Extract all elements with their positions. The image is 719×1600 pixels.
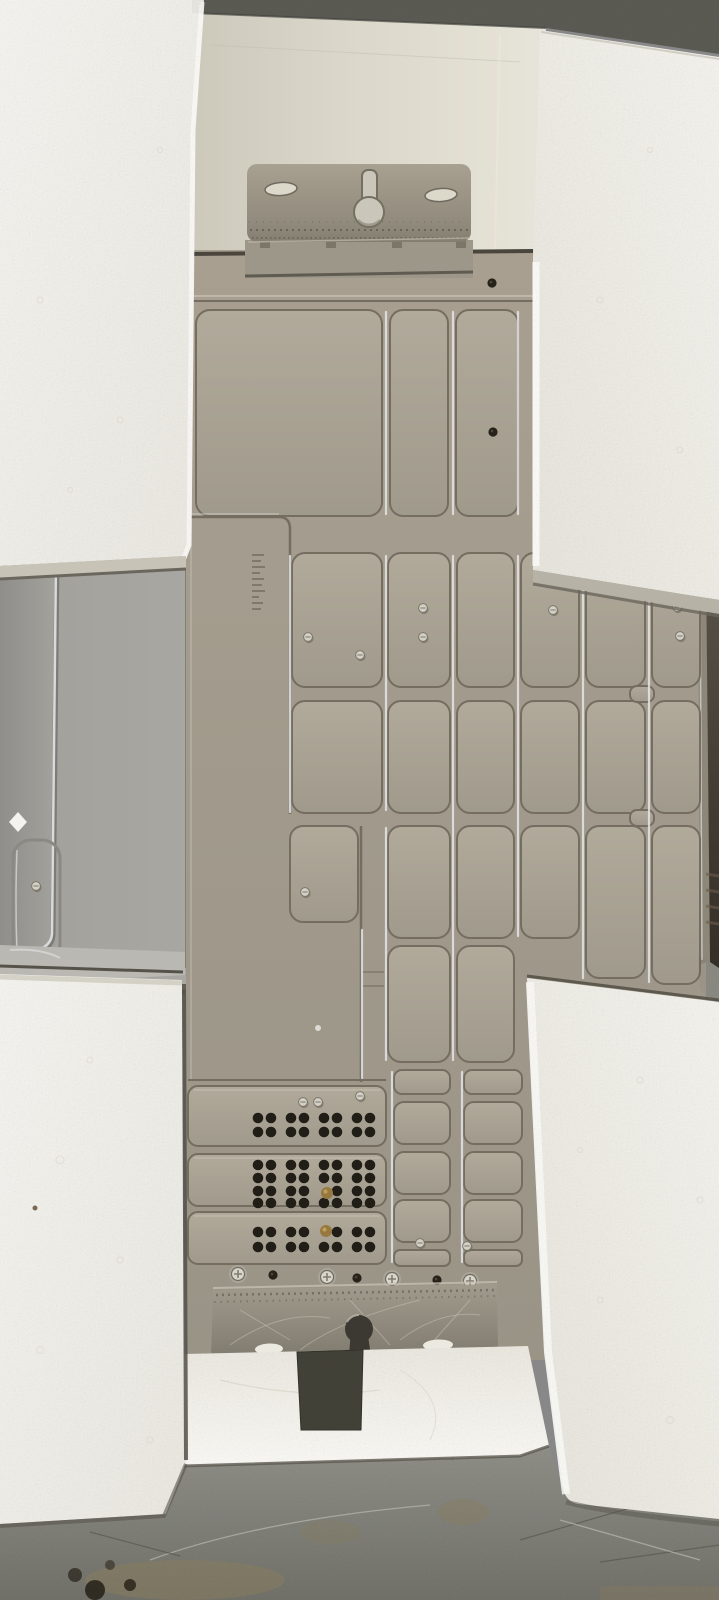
wall-mount-bracket-top [245,164,473,278]
brass-screw [321,1187,333,1199]
brass-screw [320,1225,332,1237]
wall-mount-bracket-bottom [211,1282,498,1358]
packaged-appliance-photo [0,0,719,1600]
